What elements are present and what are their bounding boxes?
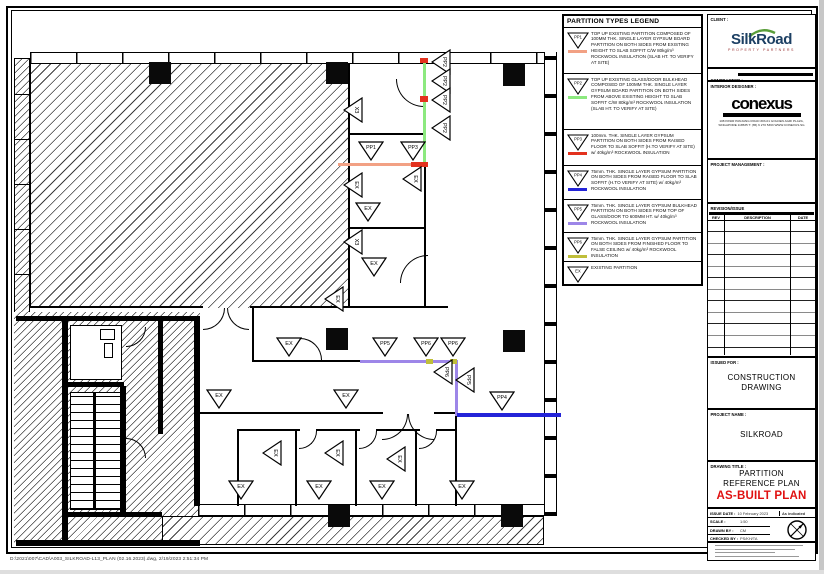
partition-marker-ex: EX [449, 480, 475, 500]
wall [436, 429, 457, 431]
partition-marker-pp2: PP2 [431, 87, 451, 113]
svg-text:PP5: PP5 [380, 341, 390, 347]
svg-text:EX: EX [364, 206, 372, 212]
drawn-by-label: DRAWN BY : [708, 528, 740, 533]
note-line [715, 552, 775, 553]
partition-marker-x3: X3 [343, 229, 363, 255]
issued-for-line1: CONSTRUCTION [708, 373, 815, 383]
scale-label: SCALE : [708, 519, 740, 524]
legend-symbol-pp3: PP3 [564, 130, 591, 165]
designer-box: INTERIOR DESIGNER : conexus 108 PASIR PA… [707, 81, 816, 159]
toilet-fixture [104, 343, 113, 358]
issue-date-label: ISSUE DATE : [708, 511, 735, 516]
rev-col: REV [708, 215, 724, 220]
partition-marker-ex: EX [206, 389, 232, 409]
legend-description: 100mm. THK. SINGLE LAYER GYPSUM PARTITIO… [591, 130, 701, 165]
partition-marker-ex: EX [276, 337, 302, 357]
rev-col-line2 [790, 215, 791, 355]
svg-text:PP2: PP2 [441, 123, 447, 133]
toilet-fixture [100, 329, 115, 340]
svg-text:PP6: PP6 [421, 341, 431, 347]
wall [30, 306, 203, 308]
client-label: CLIENT : [708, 15, 815, 22]
legend-item-ex: EXEXISTING PARTITION [564, 262, 701, 284]
stair-stringer [93, 392, 96, 510]
svg-text:EX: EX [353, 181, 359, 189]
wall [434, 412, 457, 414]
info-grid: ISSUE DATE : 10 February 2023 As indicat… [707, 508, 816, 542]
project-name-label: PROJECT NAME : [708, 410, 815, 417]
partition-types-legend: PARTITION TYPES LEGEND PP1TOP UP EXISTIN… [562, 14, 703, 286]
legend-color-bar [568, 50, 587, 53]
issue-date-value: 10 February 2023 [735, 511, 779, 516]
partition-marker-ex: EX [306, 480, 332, 500]
legend-item-pp1: PP1TOP UP EXISTING PARTITION COMPOSED OF… [564, 28, 701, 74]
designer-address-line2: SINGAPORE 118535 T: (65) 6 270 5363 WWW.… [708, 123, 815, 127]
legend-symbol-pp2: PP2 [564, 74, 591, 129]
corner-note: As indicated [779, 511, 815, 516]
client-logo-subtext: PROPERTY PARTNERS [708, 48, 815, 52]
pp3-seg1 [420, 58, 428, 63]
checked-by-label: CHECKED BY : [708, 536, 740, 541]
wall [252, 360, 362, 362]
window-band-bottom [198, 504, 544, 516]
partition-marker-pp6: PP6 [433, 359, 453, 385]
partition-marker-ex: EX [355, 202, 381, 222]
wall [252, 306, 254, 362]
screen-edge-bottom [0, 570, 824, 574]
wall [62, 512, 162, 517]
partition-marker-ex: EX [402, 166, 422, 192]
hatched-strip-bottom [162, 516, 544, 545]
legend-items: PP1TOP UP EXISTING PARTITION COMPOSED OF… [564, 28, 701, 284]
svg-text:EX: EX [334, 295, 340, 303]
client-logo-text: SilkRoad [708, 32, 815, 47]
drawing-title-line2: REFERENCE PLAN [708, 479, 815, 489]
note-line [715, 545, 803, 546]
partition-marker-ex: EX [262, 440, 282, 466]
svg-text:PP2: PP2 [441, 95, 447, 105]
partition-marker-pp3: PP3 [400, 141, 426, 161]
legend-color-bar [568, 152, 587, 155]
revision-label: REVISION/ISSUE [708, 204, 815, 211]
wall [198, 412, 383, 414]
drawing-sheet: PP1PP3EXEXEXEXEXPP5PP6PP6PP4EXEXEXEXX3EX… [0, 0, 824, 574]
structural-column [501, 505, 523, 527]
project-management-box: PROJECT MANAGEMENT : [707, 159, 816, 203]
legend-symbol-pp6: PP6 [564, 233, 591, 261]
scale-value: 1:50 [740, 519, 748, 524]
issued-for-line2: DRAWING [708, 383, 815, 393]
notes-box [707, 542, 816, 561]
file-path: D:\2021\007\CAD\A003_SILKROAD-L13_PLAN (… [10, 557, 208, 562]
wall [194, 316, 200, 506]
project-management-label: PROJECT MANAGEMENT : [708, 160, 815, 167]
wall [349, 133, 425, 135]
rev-col-line1 [724, 215, 725, 355]
client-box: CLIENT : SilkRoad PROPERTY PARTNERS [707, 14, 816, 68]
svg-text:EX: EX [237, 484, 245, 490]
designer-logo-bar [723, 113, 801, 118]
legend-symbol-ex: EX [564, 262, 591, 284]
partition-marker-ex: EX [343, 172, 363, 198]
curtain-wall-right [544, 52, 557, 516]
svg-text:PP1: PP1 [366, 145, 376, 151]
svg-text:EX: EX [370, 261, 378, 267]
window-band-top [30, 52, 557, 64]
partition-marker-pp1: PP1 [358, 141, 384, 161]
wall [415, 429, 417, 506]
svg-text:EX: EX [458, 484, 466, 490]
wall [295, 429, 297, 506]
svg-text:EX: EX [315, 484, 323, 490]
screen-edge-right [819, 0, 824, 574]
partition-marker-pp6: PP6 [440, 337, 466, 357]
wall [355, 429, 357, 506]
svg-text:EX: EX [342, 393, 350, 399]
issued-for-label: ISSUED FOR : [708, 358, 815, 365]
partition-marker-x3: X3 [343, 97, 363, 123]
hatched-zone-topleft [30, 64, 348, 308]
legend-item-pp2: PP2TOP UP EXISTING GLASS/DOOR BULKHEAD C… [564, 74, 701, 130]
legend-description: 75mm. THK. SINGLE LAYER GYPSUM BULKHEAD … [591, 200, 701, 232]
partition-marker-pp5: PP5 [455, 367, 475, 393]
legend-color-bar [568, 255, 587, 258]
wall [316, 429, 360, 431]
svg-text:EX: EX [575, 268, 581, 273]
svg-text:EX: EX [378, 484, 386, 490]
legend-symbol-pp1: PP1 [564, 28, 591, 73]
svg-text:EX: EX [215, 393, 223, 399]
partition-marker-pp2: PP2 [431, 115, 451, 141]
svg-text:PP5: PP5 [574, 206, 582, 211]
partition-marker-ex: EX [361, 257, 387, 277]
pp3-seg2 [420, 96, 428, 102]
partition-marker-pp6: PP6 [413, 337, 439, 357]
svg-text:EX: EX [396, 455, 402, 463]
partition-marker-pp4: PP4 [489, 391, 515, 411]
drawing-title-box: DRAWING TITLE : PARTITION REFERENCE PLAN… [707, 461, 816, 508]
contractor-bar [738, 73, 813, 76]
legend-item-pp5: PP575mm. THK. SINGLE LAYER GYPSUM BULKHE… [564, 200, 701, 233]
structural-column [326, 62, 348, 84]
stair [70, 392, 122, 510]
legend-color-bar [568, 96, 587, 99]
wall [62, 382, 124, 387]
contractor-box: CONTRACTOR : [707, 68, 816, 81]
project-name-box: PROJECT NAME : SILKROAD [707, 409, 816, 461]
svg-text:PP5: PP5 [465, 375, 471, 385]
wall [158, 316, 163, 434]
checked-by-value: PS/KH/TA [740, 536, 757, 541]
svg-text:PP6: PP6 [574, 239, 582, 244]
legend-item-pp6: PP675mm. THK. SINGLE LAYER GYPSUM PARTIT… [564, 233, 701, 262]
svg-text:PP6: PP6 [448, 341, 458, 347]
note-line [715, 556, 799, 557]
svg-text:PP6: PP6 [443, 367, 449, 377]
legend-color-bar [568, 188, 587, 191]
partition-marker-ex: EX [228, 480, 254, 500]
drawing-title-line1: PARTITION [708, 469, 815, 479]
svg-text:PP4: PP4 [497, 395, 507, 401]
wall [16, 316, 200, 321]
svg-text:PP3: PP3 [574, 136, 582, 141]
structural-column [503, 64, 525, 86]
partition-marker-ex: EX [324, 286, 344, 312]
plan-status: AS-BUILT PLAN [708, 490, 815, 502]
legend-symbol-pp4: PP4 [564, 166, 591, 199]
svg-text:PP2: PP2 [441, 57, 447, 67]
partition-marker-ex: EX [386, 446, 406, 472]
svg-text:EX: EX [412, 175, 418, 183]
designer-logo-text: conexus [708, 95, 815, 112]
svg-text:PP1: PP1 [574, 34, 582, 39]
pp4-line [457, 413, 561, 417]
legend-symbol-pp5: PP5 [564, 200, 591, 232]
date-col: DATE [791, 215, 815, 220]
pp6-seg1 [426, 359, 433, 364]
legend-item-pp3: PP3100mm. THK. SINGLE LAYER GYPSUM PARTI… [564, 130, 701, 166]
legend-description: TOP UP EXISTING PARTITION COMPOSED OF 10… [591, 28, 701, 73]
partition-marker-pp5: PP5 [372, 337, 398, 357]
svg-text:PP4: PP4 [574, 172, 582, 177]
svg-text:PP2: PP2 [574, 80, 582, 85]
svg-text:EX: EX [334, 449, 340, 457]
legend-item-pp4: PP475mm. THK. SINGLE LAYER GYPSUM PARTIT… [564, 166, 701, 200]
svg-text:PP3: PP3 [408, 145, 418, 151]
wall [16, 540, 200, 546]
svg-text:X3: X3 [353, 239, 359, 246]
legend-description: 75mm. THK. SINGLE LAYER GYPSUM PARTITION… [591, 233, 701, 261]
drawn-by-value: CM [740, 528, 746, 533]
partition-marker-ex: EX [324, 440, 344, 466]
structural-column [149, 62, 171, 84]
issued-for-box: ISSUED FOR : CONSTRUCTION DRAWING [707, 357, 816, 409]
legend-description: EXISTING PARTITION [591, 262, 701, 284]
partition-marker-ex: EX [333, 389, 359, 409]
legend-title: PARTITION TYPES LEGEND [564, 16, 701, 28]
project-name: SILKROAD [708, 430, 815, 440]
svg-text:X3: X3 [353, 107, 359, 114]
revision-table: REVISION/ISSUE REV DESCRIPTION DATE [707, 203, 816, 357]
structural-column [328, 505, 350, 527]
legend-description: 75mm. THK. SINGLE LAYER GYPSUM PARTITION… [591, 166, 701, 199]
partition-marker-ex: EX [369, 480, 395, 500]
wall [237, 429, 300, 431]
designer-label: INTERIOR DESIGNER : [708, 82, 815, 89]
svg-text:EX: EX [272, 449, 278, 457]
svg-text:PP2: PP2 [441, 76, 447, 86]
svg-text:EX: EX [285, 341, 293, 347]
structural-column [326, 328, 348, 350]
legend-color-bar [568, 222, 587, 225]
legend-description: TOP UP EXISTING GLASS/DOOR BULKHEAD COMP… [591, 74, 701, 129]
description-col: DESCRIPTION [724, 215, 791, 220]
note-line [715, 549, 795, 550]
title-block: CLIENT : SilkRoad PROPERTY PARTNERS CONT… [707, 13, 816, 548]
structural-column [503, 330, 525, 352]
